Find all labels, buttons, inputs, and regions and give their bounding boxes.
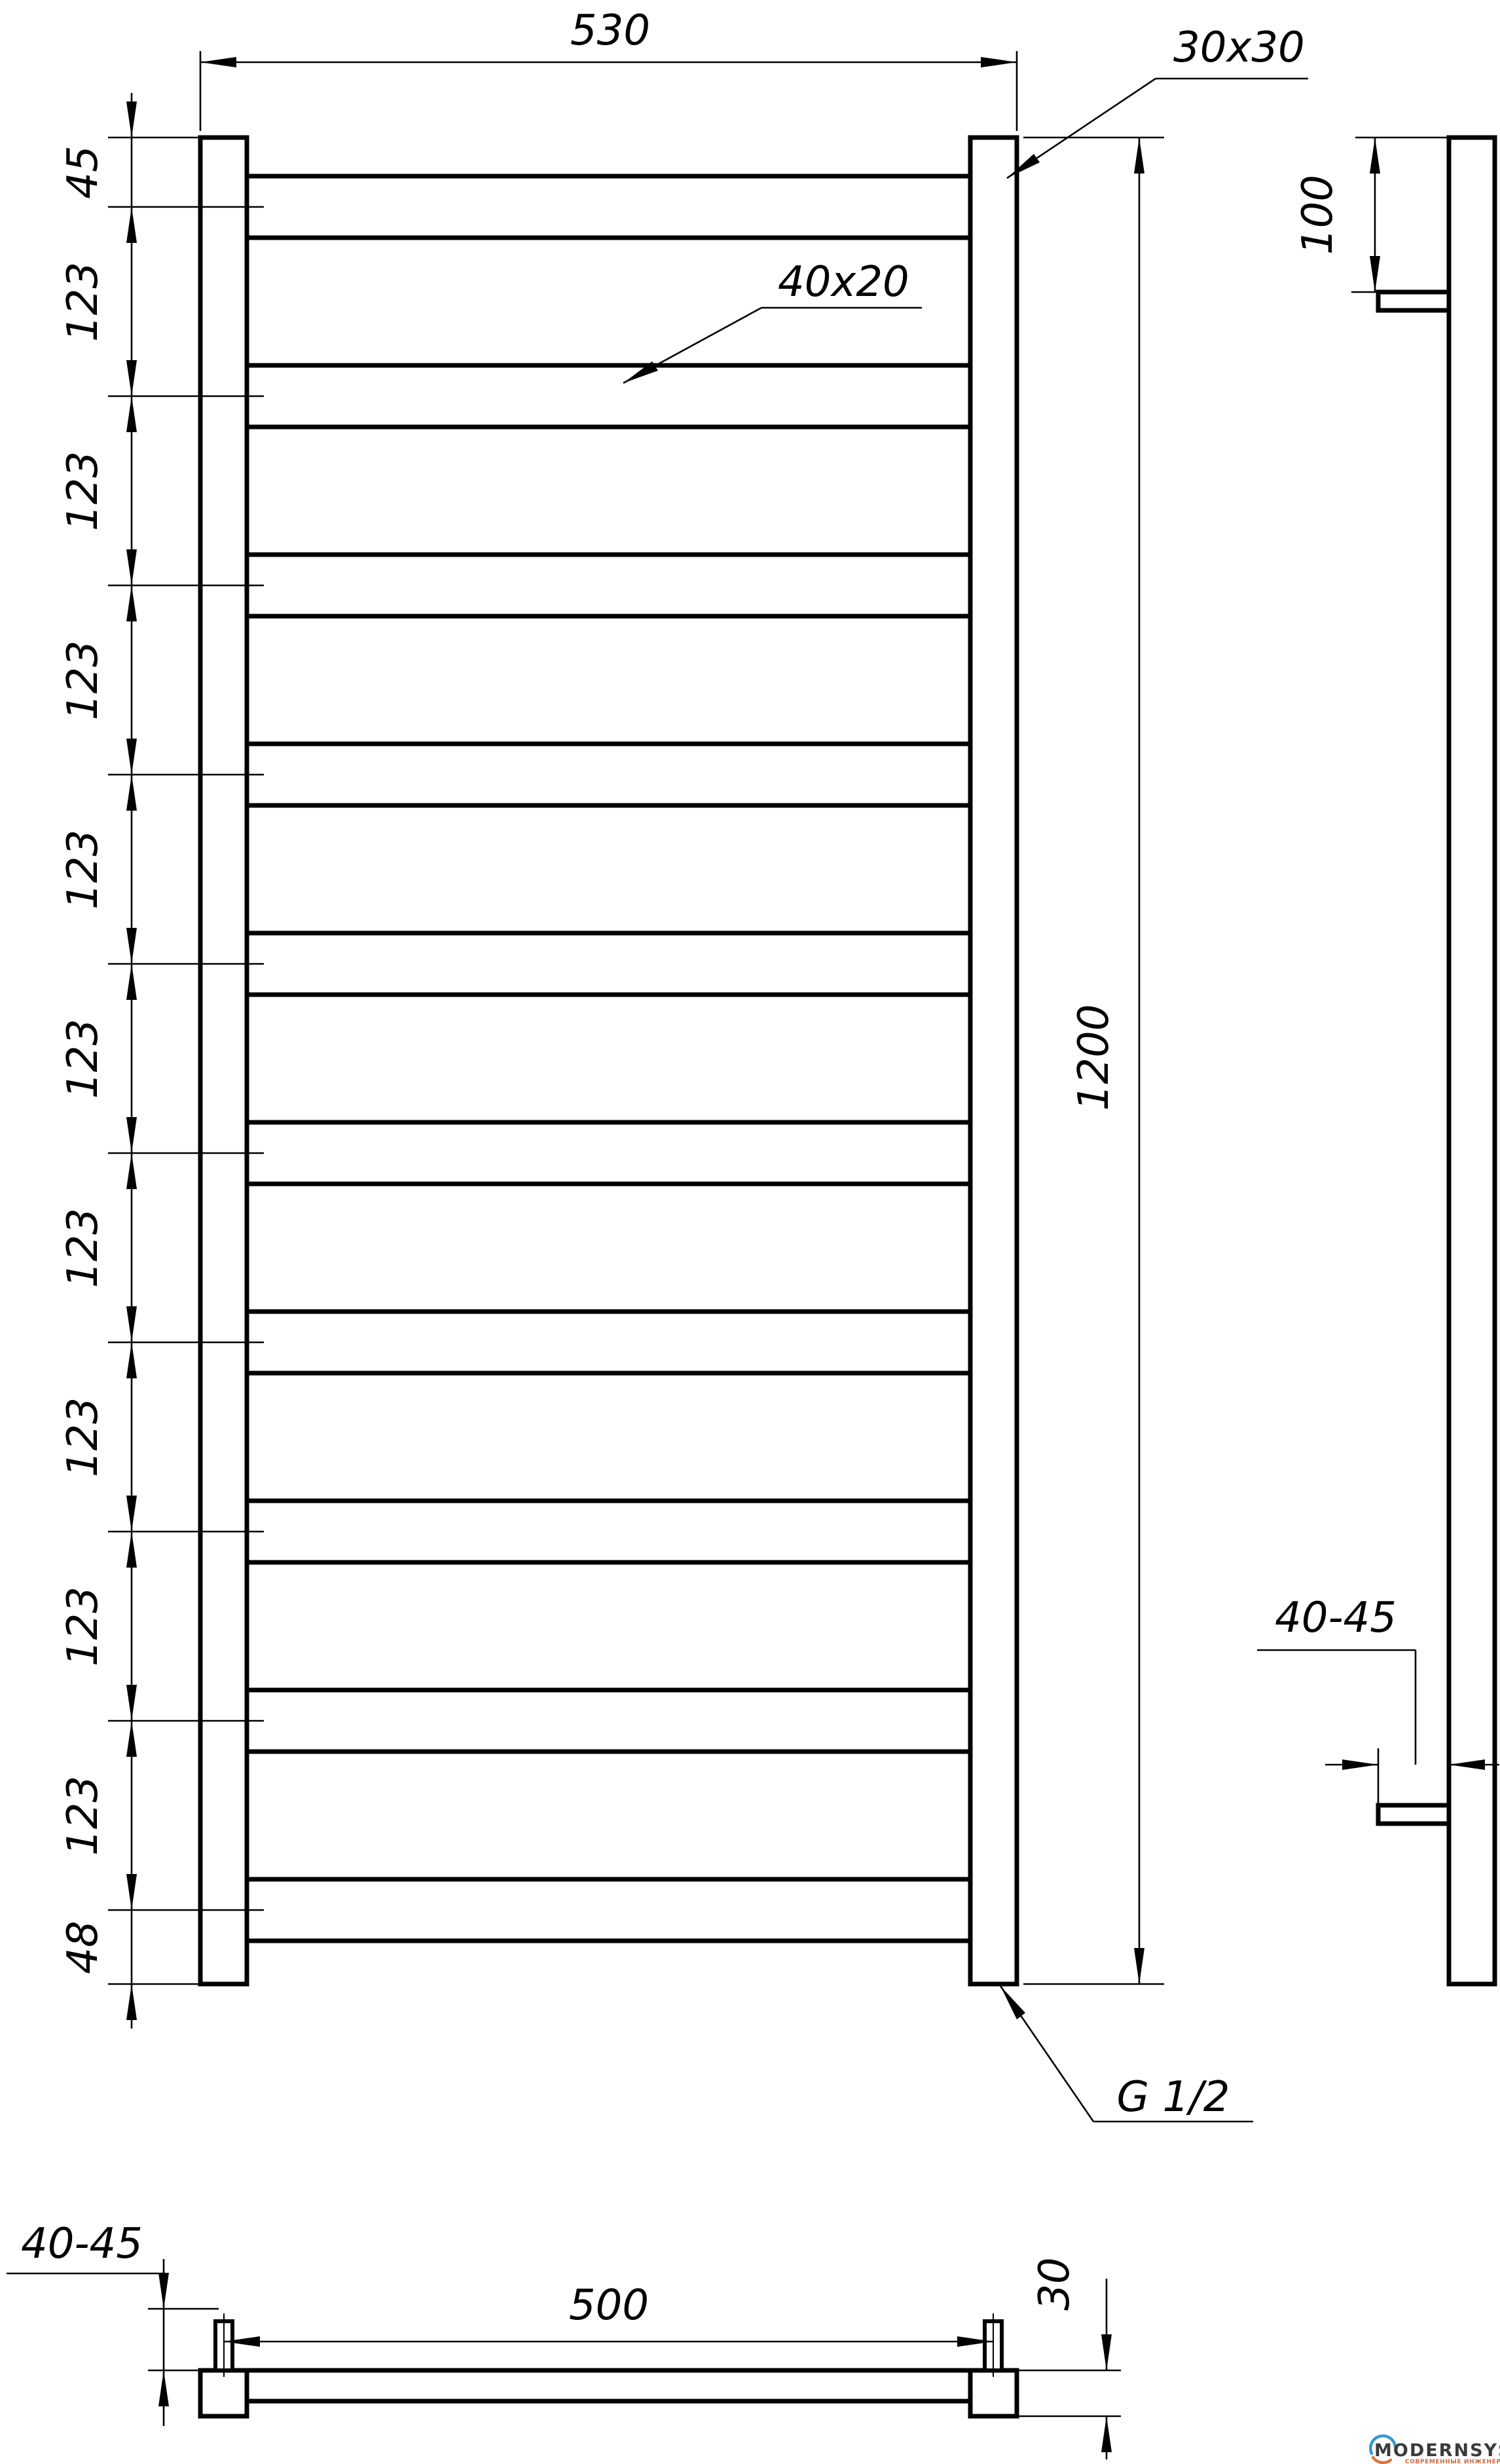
- chain-dim-label: 123: [59, 262, 107, 342]
- rung: [247, 176, 970, 238]
- front-view: [200, 138, 1017, 1984]
- arrowhead: [158, 2370, 169, 2406]
- chain-dim-label: 123: [59, 830, 107, 910]
- arrowhead: [126, 1874, 137, 1910]
- chain-dim-label: 123: [59, 451, 107, 531]
- arrowhead: [126, 1532, 137, 1568]
- arrowhead: [126, 1342, 137, 1378]
- chain-dim-label: 123: [59, 1397, 107, 1477]
- arrowhead: [126, 928, 137, 964]
- dim-100: 100: [1294, 138, 1449, 292]
- rung: [247, 933, 970, 995]
- callout-30x30: 30x30: [1007, 24, 1308, 178]
- arrowhead: [1101, 2334, 1112, 2370]
- height-dim-label: 1200: [1070, 1004, 1118, 1111]
- arrowhead: [126, 1984, 137, 2020]
- arrowhead: [126, 964, 137, 1000]
- rung: [247, 1312, 970, 1373]
- chain-dim-label: 123: [59, 1208, 107, 1288]
- right-post-section: [970, 2370, 1017, 2416]
- left-post-section: [200, 2370, 247, 2416]
- offset-dim-label: 100: [1294, 175, 1342, 255]
- brand-logo: MODERNSYS СОВРЕМЕННЫЕ ИНЖЕНЕРНЫЕ СИСТЕМЫ: [1370, 2436, 1500, 2464]
- arrowhead: [126, 1306, 137, 1342]
- chain-dim-label: 123: [59, 1587, 107, 1666]
- dim-1200: 1200: [1023, 138, 1164, 1984]
- wall-distance-label: 40-45: [21, 2220, 143, 2268]
- arrowhead: [126, 549, 137, 585]
- rung: [247, 1690, 970, 1752]
- left-post: [200, 138, 247, 1984]
- chain-dim-label: 45: [59, 145, 107, 198]
- arrowhead: [126, 585, 137, 621]
- arrowhead: [1370, 138, 1380, 174]
- arrowhead: [200, 57, 236, 67]
- side-view: [1378, 138, 1495, 1984]
- right-post: [970, 138, 1017, 1984]
- post-depth-label: 30: [1031, 2257, 1079, 2310]
- arrowhead: [126, 396, 137, 432]
- arrowhead: [126, 101, 137, 138]
- thread-label: G 1/2: [1117, 2073, 1230, 2122]
- post-size-label: 30x30: [1173, 24, 1305, 72]
- chain-dim-label: 123: [59, 640, 107, 720]
- arrowhead: [126, 739, 137, 775]
- rung-size-label: 40x20: [778, 258, 909, 306]
- width-dim-label: 530: [570, 7, 650, 55]
- rung: [247, 365, 970, 427]
- arrowhead: [1134, 138, 1144, 174]
- bottom-wall-bracket: [1378, 1805, 1449, 1824]
- arrowhead: [1342, 1759, 1378, 1770]
- logo-name: MODERNSYS: [1374, 2440, 1500, 2461]
- drawing-sheet: 45 123 123 123 123 123 123 123 123 123 4…: [0, 0, 1500, 2464]
- arrowhead: [126, 1117, 137, 1153]
- rung: [247, 555, 970, 616]
- rung: [247, 744, 970, 805]
- arrowhead: [126, 1721, 137, 1757]
- chain-dim-label: 123: [59, 1019, 107, 1099]
- dim-30: 30: [1017, 2257, 1121, 2459]
- rung-bar: [247, 2370, 970, 2401]
- chain-dim-label: 48: [59, 1921, 107, 1974]
- arrowhead: [126, 1685, 137, 1721]
- arrowhead: [1000, 1986, 1025, 2019]
- technical-drawing: 45 123 123 123 123 123 123 123 123 123 4…: [0, 0, 1500, 2464]
- rung: [247, 1501, 970, 1562]
- rung: [247, 1879, 970, 1941]
- side-post: [1449, 138, 1495, 1984]
- arrowhead: [158, 2273, 169, 2309]
- arrowhead: [126, 1153, 137, 1189]
- arrowhead: [126, 207, 137, 243]
- top-wall-bracket: [1378, 292, 1449, 310]
- arrowhead: [126, 775, 137, 811]
- arrowhead: [126, 360, 137, 396]
- span-dim-label: 500: [569, 2281, 649, 2330]
- arrowhead: [1101, 2416, 1112, 2452]
- arrowhead: [1134, 1948, 1144, 1984]
- wall-distance-label: 40-45: [1275, 1594, 1397, 1642]
- dim-530: 530: [200, 7, 1017, 131]
- arrowhead: [1370, 256, 1380, 292]
- arrowhead: [126, 1496, 137, 1532]
- chain-dim-label: 123: [59, 1776, 107, 1856]
- dim-500: 500: [224, 2281, 993, 2347]
- arrowhead: [981, 57, 1017, 67]
- dim-40-45-bottom: 40-45: [7, 2220, 219, 2426]
- rung: [247, 1122, 970, 1184]
- callout-g12: G 1/2: [1000, 1986, 1253, 2122]
- logo-tagline: СОВРЕМЕННЫЕ ИНЖЕНЕРНЫЕ СИСТЕМЫ: [1405, 2459, 1500, 2464]
